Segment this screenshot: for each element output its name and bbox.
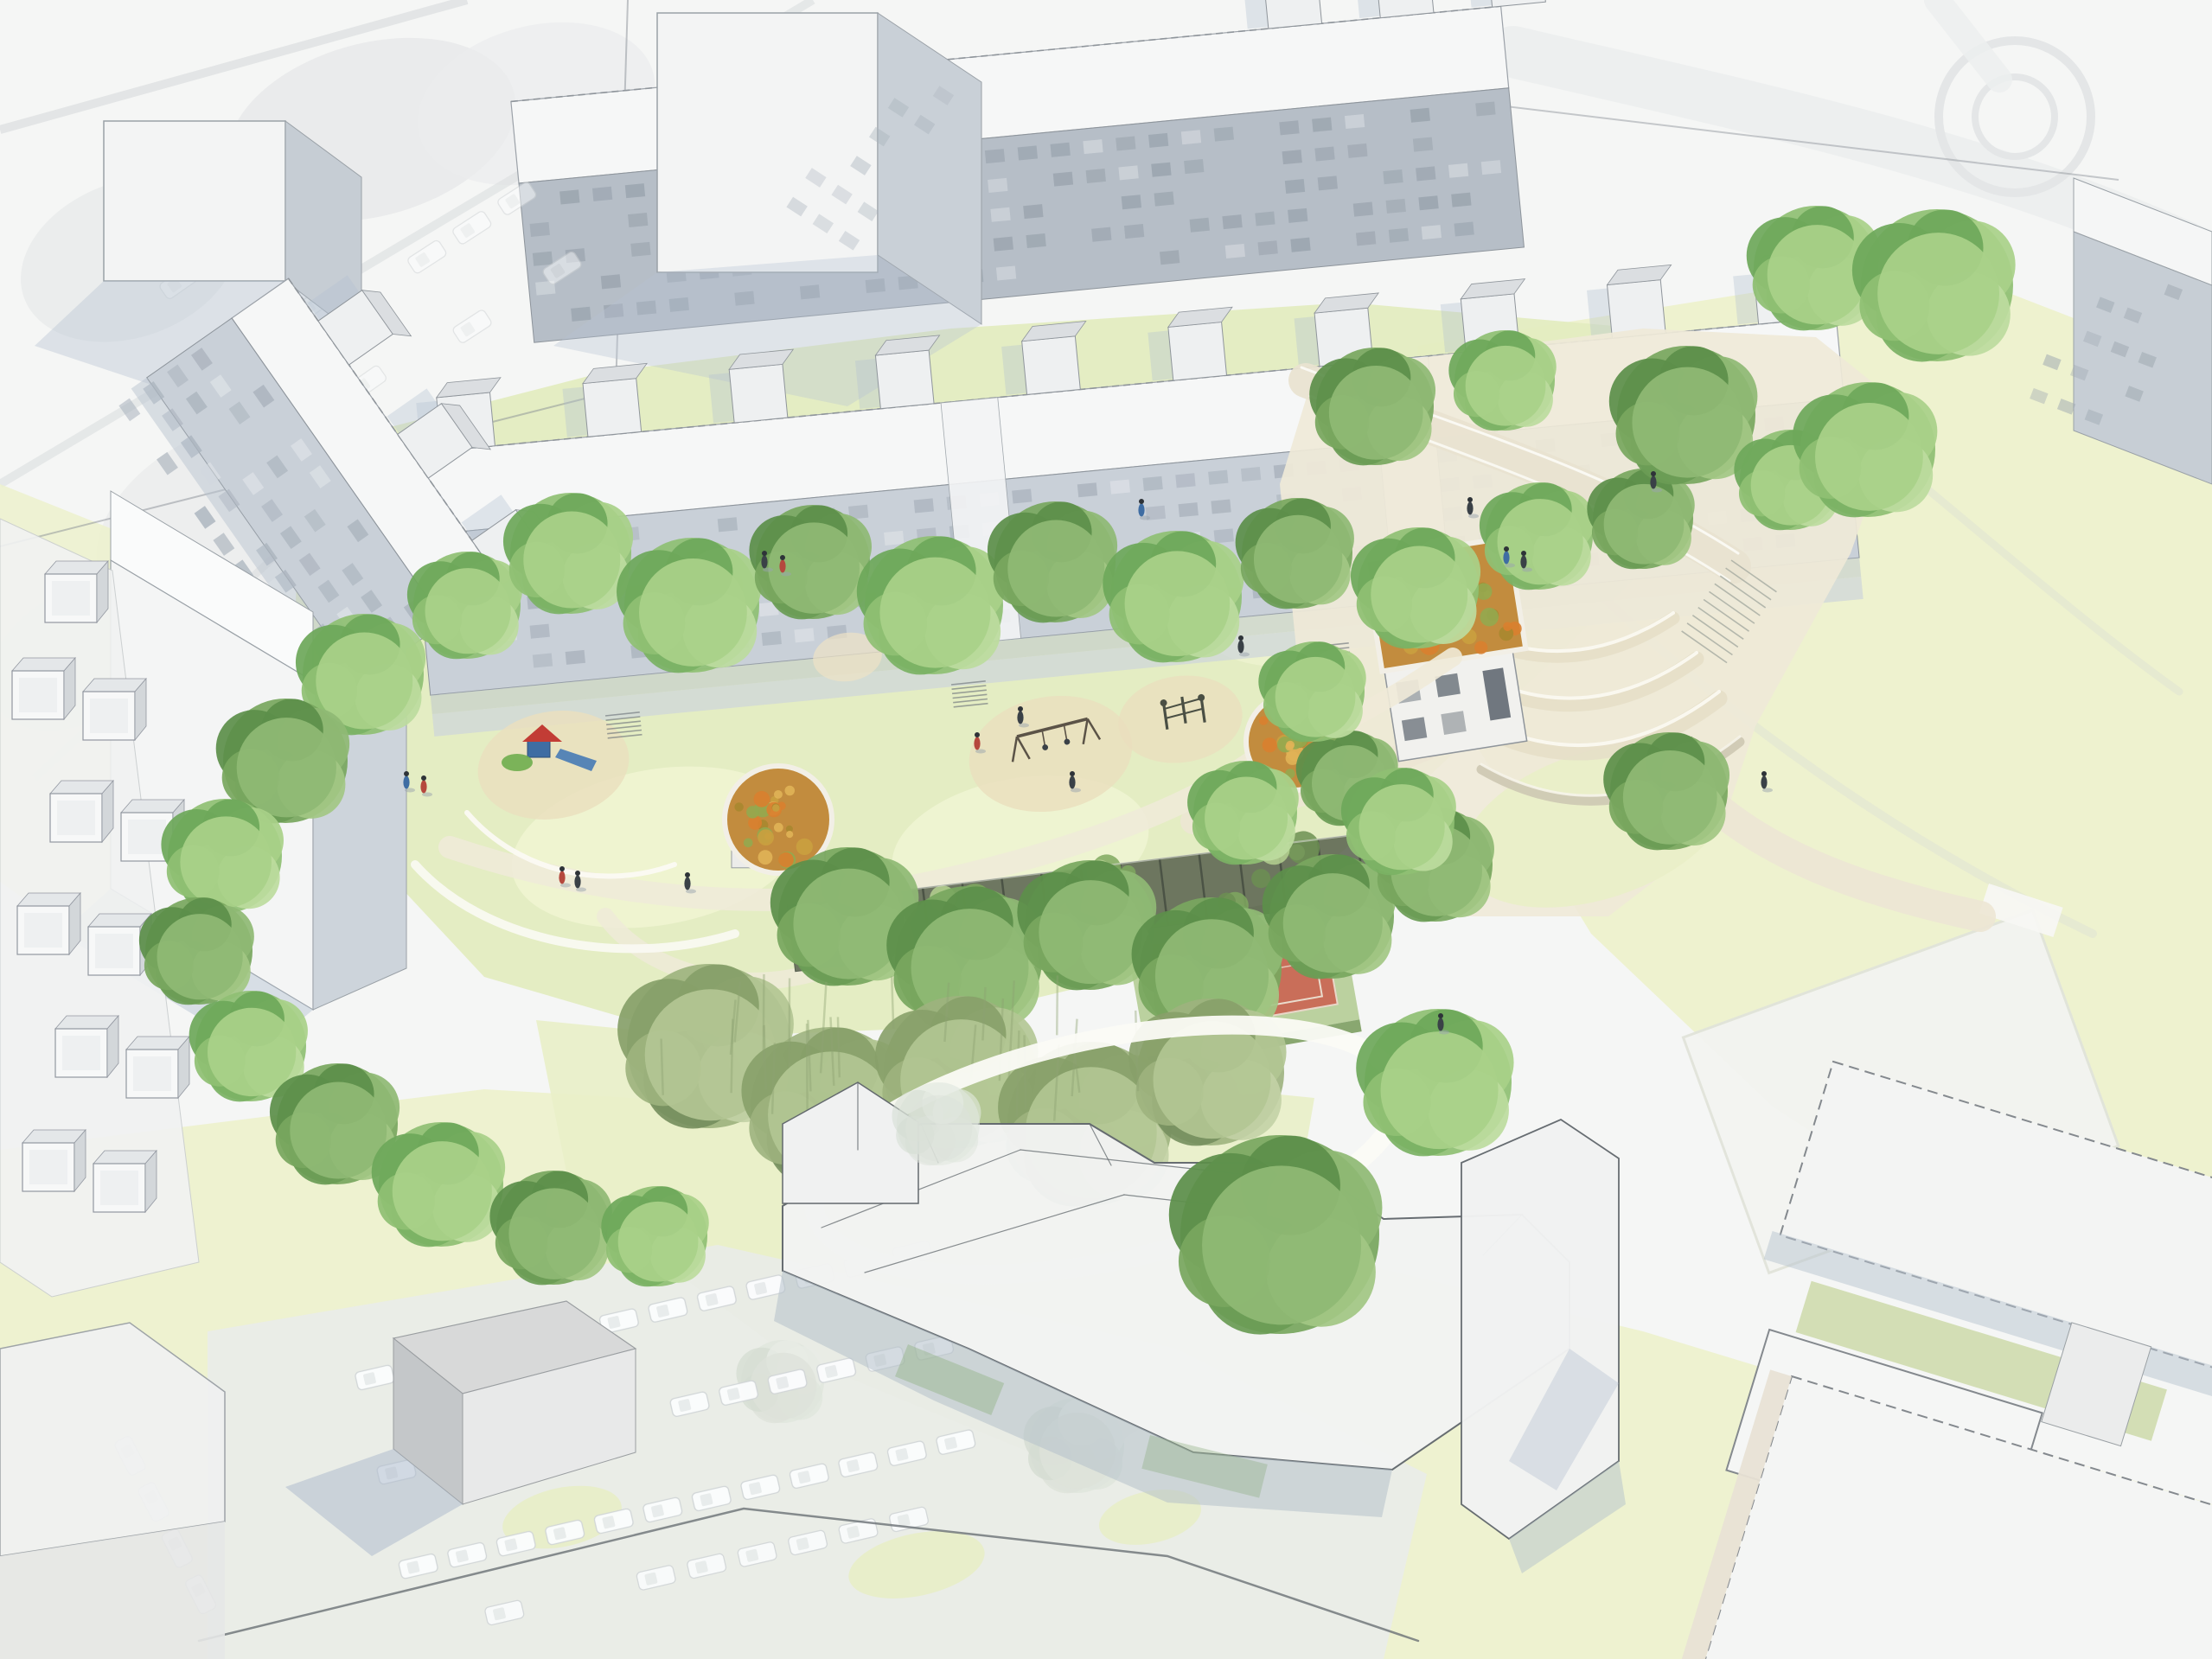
- play-tower-body: [527, 740, 550, 757]
- site-plan-rendering: [0, 0, 2212, 1659]
- tower-northwest-front: [104, 121, 285, 281]
- balcony: [12, 658, 75, 719]
- balcony: [22, 1130, 86, 1191]
- balcony: [93, 1151, 157, 1212]
- aerial-architectural-rendering: [0, 0, 2212, 1659]
- balcony: [83, 679, 146, 740]
- balcony: [17, 893, 80, 954]
- balcony: [126, 1037, 189, 1098]
- balcony: [55, 1016, 118, 1077]
- balcony: [45, 561, 108, 622]
- balcony: [50, 781, 113, 842]
- play-bush: [502, 754, 533, 771]
